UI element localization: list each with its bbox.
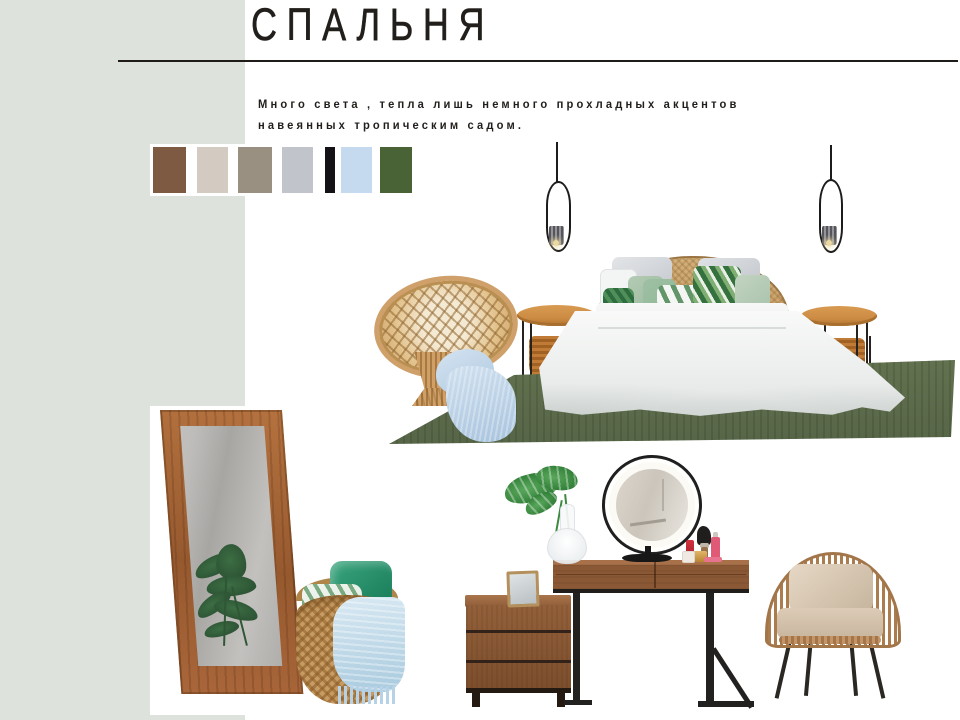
palette-swatch-black [325, 147, 335, 193]
bedroom-moodboard-page: СПАЛЬНЯ Много света , тепла лишь немного… [0, 0, 960, 720]
duvet-fold-line [598, 327, 786, 329]
title-divider-line [118, 60, 958, 62]
throw-fringe [338, 686, 398, 704]
pendant-lamp-right-cord [830, 145, 832, 181]
palette-swatch-forest-green [380, 147, 412, 193]
palette-swatch-light-blue [341, 147, 372, 193]
pendant-lamp-right-bulb [826, 240, 832, 246]
bedside-table-left-leg [530, 315, 532, 378]
armchair-back-cushion [789, 564, 873, 614]
pendant-lamp-left-bulb [553, 240, 559, 246]
dresser-drawer-gap [466, 660, 571, 663]
vanity-drawer-divider [654, 562, 656, 588]
armchair-front-rail [779, 636, 881, 644]
dresser-base-rail [466, 688, 571, 693]
vanity-tabletop [553, 560, 749, 590]
mirror-reflection-bar [630, 519, 666, 527]
powder-jar [682, 551, 695, 563]
bedside-table-left-leg [522, 315, 524, 378]
picture-frame-on-dresser [506, 570, 539, 607]
light-blue-throw-in-basket [333, 597, 405, 692]
glass-vase [547, 528, 587, 564]
dresser-foot [472, 693, 480, 707]
dresser-drawers [466, 605, 571, 689]
rope-armchair [765, 550, 895, 705]
description-line-2: навеянных тропическим садом. [258, 115, 740, 136]
vanity-drawer-seam [556, 574, 746, 575]
reflected-plant-leaf [202, 618, 241, 641]
mirror-glass [180, 426, 282, 666]
vanity-metal-rail [553, 589, 749, 593]
page-title: СПАЛЬНЯ [251, 2, 494, 48]
vanity-mirror-led-ring [609, 462, 695, 548]
mirror-reflection-line [662, 479, 664, 511]
vanity-mirror-base [622, 554, 672, 562]
dresser-drawer-gap [466, 630, 571, 633]
leaning-floor-mirror [160, 410, 303, 694]
color-palette [150, 144, 425, 196]
description-text: Много света , тепла лишь немного прохлад… [258, 94, 740, 136]
vanity-left-foot [564, 700, 592, 705]
vanity-left-leg [573, 592, 580, 704]
armchair-seat-cushion [777, 608, 883, 639]
palette-swatch-brown [153, 147, 186, 193]
description-line-1: Много света , тепла лишь немного прохлад… [258, 94, 740, 115]
palette-swatch-taupe [238, 147, 272, 193]
palette-image-backing [150, 144, 425, 196]
pink-lipstick-lying [704, 557, 722, 562]
vanity-leg-brace [711, 647, 753, 708]
palette-swatch-silver-gray [282, 147, 313, 193]
palette-swatch-warm-beige [197, 147, 228, 193]
pendant-lamp-left-cord [556, 142, 558, 183]
